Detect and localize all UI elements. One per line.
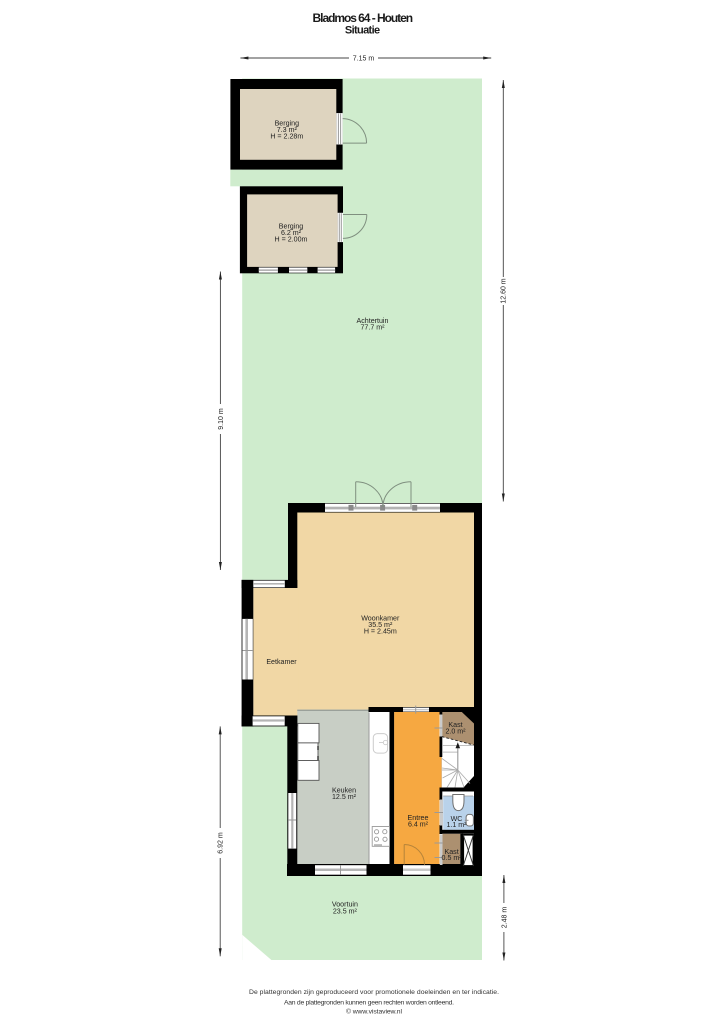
svg-text:H = 2.00m: H = 2.00m [275,235,308,243]
svg-text:H = 2.28m: H = 2.28m [270,133,303,141]
svg-text:7.15 m: 7.15 m [353,55,375,62]
svg-text:Aan de plattegronden kunnen ge: Aan de plattegronden kunnen geen rechten… [284,1000,454,1007]
svg-text:77.7 m²: 77.7 m² [360,324,385,332]
svg-text:De plattegronden zijn geproduc: De plattegronden zijn geproduceerd voor … [249,989,499,996]
svg-text:2.48 m: 2.48 m [501,907,508,929]
svg-text:© www.vistaview.nl: © www.vistaview.nl [346,1008,402,1016]
svg-text:1.1 m²: 1.1 m² [446,821,467,829]
svg-text:Eetkamer: Eetkamer [266,658,297,666]
svg-text:12.5 m²: 12.5 m² [332,793,357,801]
svg-text:9.10 m: 9.10 m [218,408,225,430]
svg-text:H = 2.45m: H = 2.45m [364,628,397,636]
svg-text:12.60 m: 12.60 m [501,278,508,303]
svg-text:Bladmos 64 - Houten: Bladmos 64 - Houten [313,11,414,25]
svg-text:6.92 m: 6.92 m [218,832,225,854]
svg-text:23.5 m²: 23.5 m² [333,908,358,916]
svg-text:6.4 m²: 6.4 m² [408,821,429,829]
svg-text:Situatie: Situatie [345,25,380,37]
svg-text:0.5 m²: 0.5 m² [442,854,463,862]
svg-text:2.0 m²: 2.0 m² [445,728,466,736]
